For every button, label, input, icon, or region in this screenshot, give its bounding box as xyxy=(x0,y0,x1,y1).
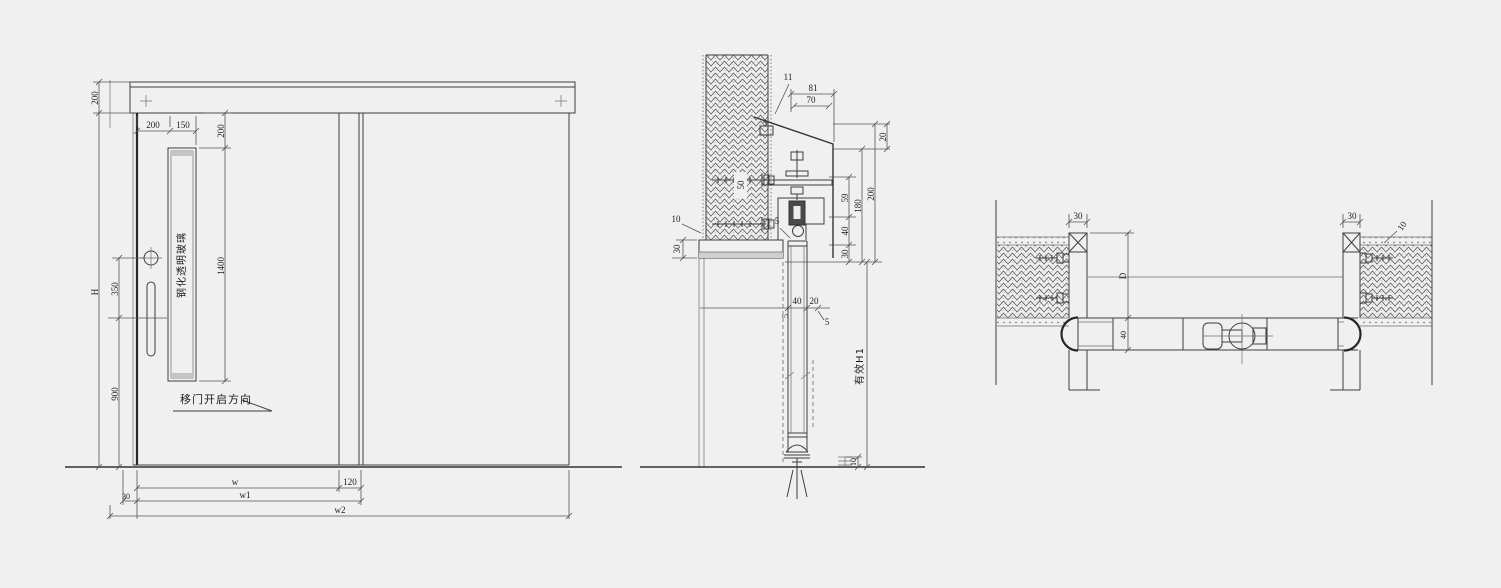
dim-label: 10 xyxy=(1395,219,1409,233)
lock-assembly-plan xyxy=(1203,314,1273,364)
panel-seam xyxy=(359,113,363,465)
plan-section-view: 30 30 10 D 40 xyxy=(996,200,1432,390)
dim-label: 5 xyxy=(825,317,830,327)
hanger-roller-assembly xyxy=(762,150,832,240)
head-board xyxy=(699,240,783,258)
dim-label: 180 xyxy=(853,199,863,213)
jamb-profile-box xyxy=(1069,233,1087,252)
dim-label: 有效H1 xyxy=(853,347,866,385)
dim-label: 40 xyxy=(1119,331,1128,339)
opening-direction-label: 移门开启方向 xyxy=(180,392,252,406)
dim-label: 40 xyxy=(793,296,803,306)
dim-label: 200 xyxy=(90,91,100,105)
dim-label: 59 xyxy=(840,193,850,203)
dim-label: w1 xyxy=(240,490,251,500)
dim-label: w xyxy=(232,477,239,487)
dim-label: 200 xyxy=(866,187,876,201)
crosshair-mark-right xyxy=(555,95,567,107)
crosshair-mark-left xyxy=(140,95,152,107)
vertical-section-view: 50 10 10 11 5 81 xyxy=(640,55,925,499)
dim-label: 11 xyxy=(784,72,793,82)
wall-hatch xyxy=(997,245,1069,318)
floor-guide xyxy=(784,445,810,499)
dim-label: 10 xyxy=(672,214,682,224)
floor-anchor xyxy=(787,458,807,499)
dim-label: 120 xyxy=(343,477,357,487)
dim-label: 30 xyxy=(672,244,682,254)
wall-section xyxy=(699,55,771,467)
dim-label: 20 xyxy=(878,132,888,142)
dim-label: D xyxy=(1118,272,1128,279)
door-panels xyxy=(133,113,569,465)
glass-top-cap xyxy=(171,151,193,156)
dim-label: 1400 xyxy=(216,257,226,276)
dim-label: 5 xyxy=(775,216,780,226)
recessed-handle xyxy=(147,282,155,356)
glass-bottom-cap xyxy=(171,373,193,378)
opening-direction-arrow: 移门开启方向 xyxy=(173,392,272,411)
jamb-profile-box xyxy=(1343,233,1360,252)
dim-label: 30 xyxy=(122,492,130,501)
dim-label: 30 xyxy=(1348,211,1358,221)
plan-dimensions: 30 30 10 D 40 xyxy=(1066,211,1409,353)
glass-material-label: 钢化透明玻璃 xyxy=(175,232,188,298)
cad-drawing-sheet: 钢化透明玻璃 移门开启方向 200 H 350 900 200 150 200 … xyxy=(0,0,1501,588)
drawing-canvas: 钢化透明玻璃 移门开启方向 200 H 350 900 200 150 200 … xyxy=(0,0,1501,588)
elevation-dimensions: 200 H 350 900 200 150 200 1400 w 120 30 … xyxy=(90,79,572,519)
dim-label: 81 xyxy=(809,83,818,93)
dim-label: 200 xyxy=(216,124,226,138)
glass-vision-panel: 钢化透明玻璃 xyxy=(168,148,196,381)
dim-label: w2 xyxy=(335,505,346,515)
wall-hatch xyxy=(1360,245,1432,318)
dim-label: 50 xyxy=(736,180,746,190)
dim-label: 150 xyxy=(176,120,190,130)
door-leaf-section xyxy=(785,241,810,452)
dim-label: 40 xyxy=(840,226,850,236)
dim-label: 30 xyxy=(1074,211,1084,221)
dim-label: H xyxy=(90,288,100,295)
dim-label: 10 xyxy=(849,458,858,466)
wall-hatch xyxy=(706,55,768,240)
front-elevation-view: 钢化透明玻璃 移门开启方向 200 H 350 900 200 150 200 … xyxy=(65,79,622,519)
door-leaf-plan xyxy=(1062,314,1361,364)
dim-label: 900 xyxy=(110,387,120,401)
dim-label: 70 xyxy=(807,95,817,105)
dim-label: 30 xyxy=(840,249,850,259)
dim-label: 200 xyxy=(146,120,160,130)
dim-label: 5 xyxy=(781,314,790,318)
dim-label: 350 xyxy=(110,282,120,296)
dim-label: 20 xyxy=(810,296,820,306)
